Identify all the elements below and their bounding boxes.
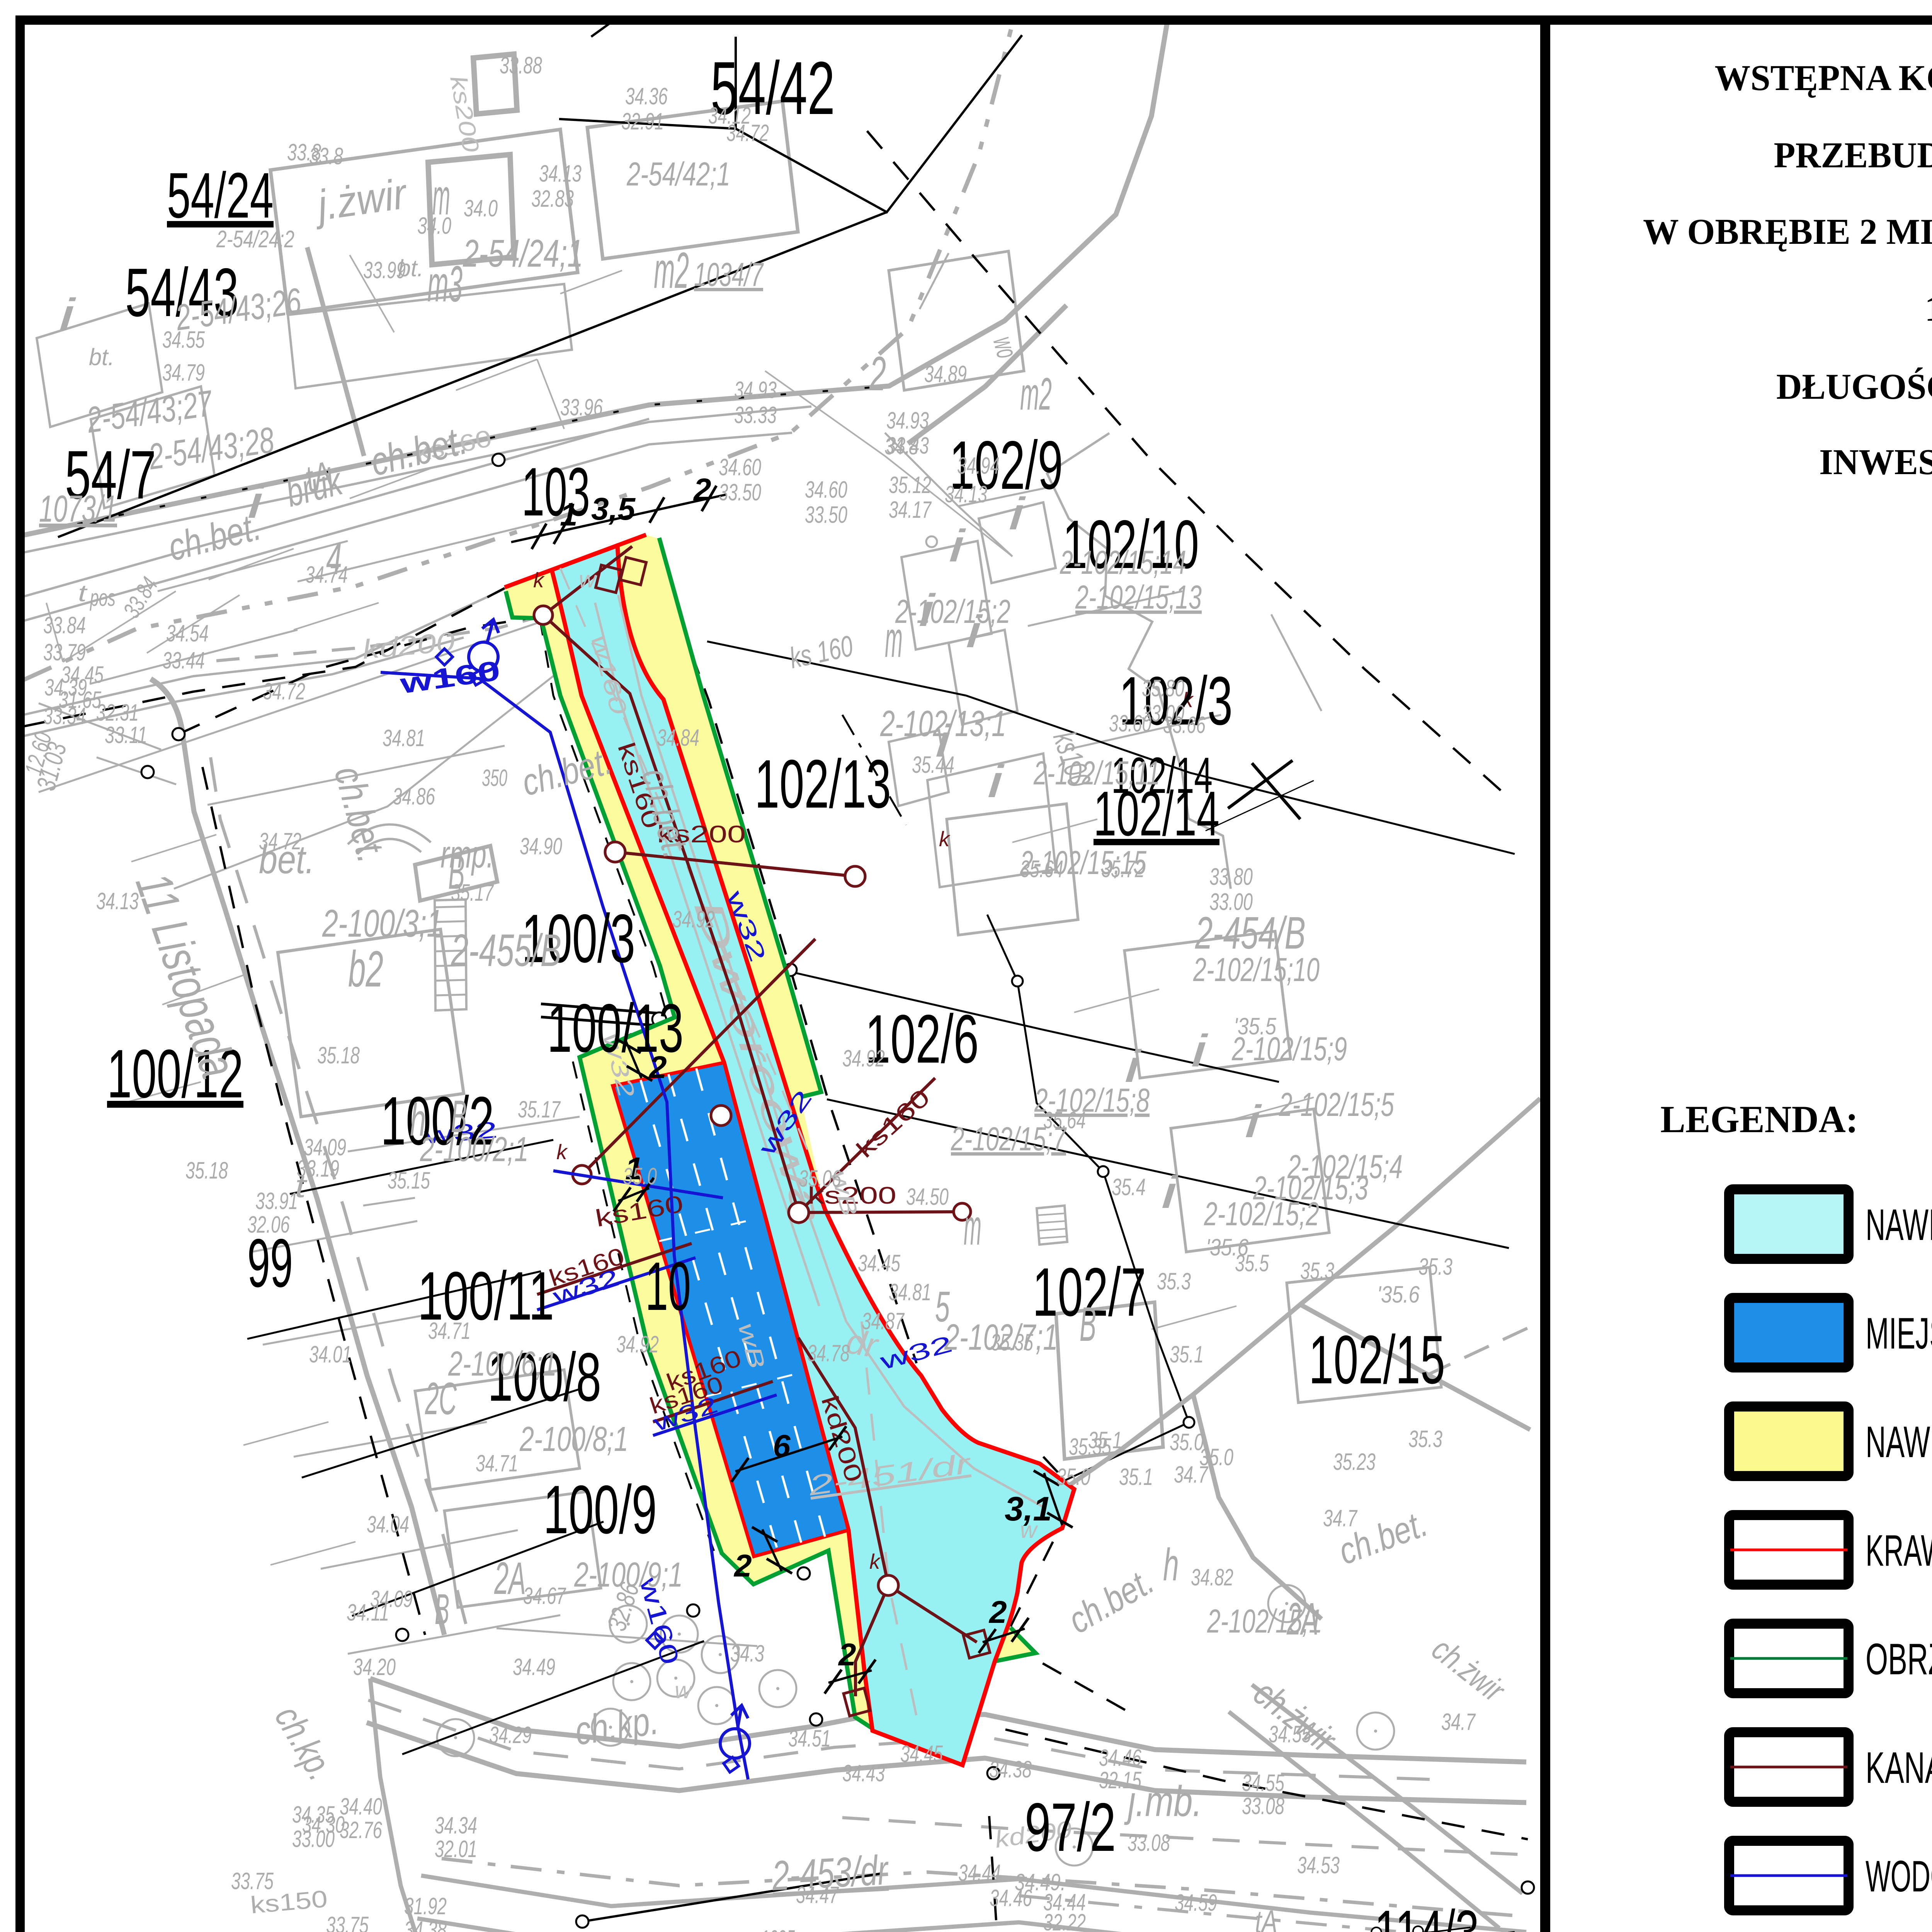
svg-text:2-102/15;2: 2-102/15;2 — [1204, 1196, 1319, 1233]
svg-text:W OBRĘBIE 2 MIASTA SĘPOPOL, NA: W OBRĘBIE 2 MIASTA SĘPOPOL, NA DZIAŁKACH… — [1643, 212, 1932, 252]
svg-text:34.53: 34.53 — [1297, 1852, 1340, 1878]
svg-text:34.45: 34.45 — [61, 662, 104, 688]
svg-text:32.01: 32.01 — [435, 1836, 477, 1862]
svg-text:WODOCIĄG: WODOCIĄG — [1866, 1852, 1932, 1901]
svg-text:34.7: 34.7 — [1174, 1461, 1208, 1488]
svg-text:33.75: 33.75 — [326, 1912, 369, 1932]
svg-text:34.71: 34.71 — [428, 1318, 471, 1344]
svg-text:34.72: 34.72 — [259, 828, 301, 854]
svg-text:pos: pos — [90, 585, 116, 611]
svg-text:i: i — [59, 289, 76, 340]
svg-text:2-100/8;1: 2-100/8;1 — [519, 1420, 628, 1459]
svg-text:33.19: 33.19 — [297, 1155, 339, 1182]
svg-text:34.17: 34.17 — [889, 497, 932, 523]
svg-text:32.91: 32.91 — [621, 108, 664, 134]
svg-text:'35.5: '35.5 — [1234, 1013, 1277, 1039]
svg-text:35.0: 35.0 — [1056, 1464, 1090, 1490]
svg-text:2-100/6;1: 2-100/6;1 — [448, 1344, 557, 1383]
svg-text:34.93: 34.93 — [734, 377, 777, 403]
svg-text:35.3: 35.3 — [1300, 1258, 1334, 1284]
svg-text:k: k — [533, 568, 545, 592]
svg-text:35.06: 35.06 — [799, 1165, 841, 1192]
svg-text:34.87: 34.87 — [862, 1308, 905, 1334]
svg-text:103: 103 — [522, 453, 590, 530]
svg-text:35.1: 35.1 — [1119, 1464, 1153, 1490]
svg-text:35.4: 35.4 — [1112, 1174, 1146, 1200]
svg-text:34.94: 34.94 — [957, 452, 1000, 479]
svg-text:34.71: 34.71 — [476, 1450, 518, 1476]
svg-text:35.5: 35.5 — [1235, 1250, 1269, 1276]
svg-text:100/13: 100/13 — [547, 990, 684, 1066]
svg-text:B: B — [435, 1585, 449, 1633]
svg-text:34.38: 34.38 — [989, 1756, 1032, 1782]
svg-text:10: 10 — [645, 1248, 691, 1325]
svg-text:34.46: 34.46 — [990, 1885, 1032, 1911]
svg-text:2-455/B: 2-455/B — [451, 925, 561, 976]
svg-text:34.20: 34.20 — [353, 1654, 396, 1680]
svg-text:34.29: 34.29 — [489, 1722, 532, 1748]
svg-text:NAWIERZCHNIA CHODNIKA/OPASKI: NAWIERZCHNIA CHODNIKA/OPASKI — [1866, 1418, 1932, 1467]
svg-text:33.00: 33.00 — [1209, 888, 1253, 915]
svg-text:rmp.: rmp. — [440, 833, 494, 876]
svg-text:34.45: 34.45 — [900, 1741, 943, 1767]
svg-text:m3: m3 — [427, 255, 463, 312]
svg-text:34.0: 34.0 — [417, 213, 451, 239]
svg-text:i: i — [1245, 1096, 1262, 1147]
svg-text:34.01: 34.01 — [309, 1341, 352, 1367]
svg-text:35.1: 35.1 — [1170, 1341, 1204, 1367]
svg-text:32.76: 32.76 — [340, 1817, 382, 1843]
svg-text:k: k — [869, 1549, 881, 1573]
svg-text:2: 2 — [733, 1548, 752, 1583]
svg-text:34.92: 34.92 — [616, 1331, 659, 1357]
svg-text:35.80: 35.80 — [1142, 675, 1184, 701]
svg-text:35.0: 35.0 — [623, 1163, 657, 1189]
svg-text:i: i — [1124, 1041, 1142, 1092]
svg-text:34.92: 34.92 — [842, 1045, 885, 1071]
svg-text:33.96: 33.96 — [560, 394, 603, 420]
svg-text:34.72: 34.72 — [263, 678, 305, 704]
svg-text:i: i — [987, 756, 1005, 807]
svg-text:2-102/15;13: 2-102/15;13 — [1075, 579, 1202, 616]
svg-text:34.89: 34.89 — [924, 361, 967, 387]
svg-text:33.00: 33.00 — [292, 1826, 335, 1852]
svg-text:34.78: 34.78 — [807, 1340, 850, 1366]
svg-text:'35.6: '35.6 — [1377, 1281, 1420, 1308]
svg-text:34.81: 34.81 — [383, 725, 425, 751]
svg-text:34.34: 34.34 — [435, 1812, 477, 1838]
svg-text:35.12: 35.12 — [889, 472, 931, 498]
svg-text:35.18: 35.18 — [317, 1042, 360, 1068]
svg-text:33.8: 33.8 — [309, 143, 343, 169]
svg-text:35.23: 35.23 — [1333, 1449, 1376, 1475]
svg-text:34.60: 34.60 — [805, 476, 847, 503]
svg-text:34.55: 34.55 — [1242, 1770, 1285, 1796]
svg-text:34.8: 34.8 — [884, 433, 918, 459]
svg-text:6: 6 — [773, 1429, 791, 1464]
svg-text:34.13: 34.13 — [96, 888, 139, 914]
svg-text:3,5: 3,5 — [591, 492, 636, 527]
svg-text:34.67: 34.67 — [523, 1583, 566, 1609]
svg-text:2-54/24;2: 2-54/24;2 — [216, 226, 294, 253]
svg-text:2-54/24;1: 2-54/24;1 — [463, 232, 583, 275]
svg-text:35.1: 35.1 — [1088, 1427, 1122, 1453]
svg-text:35.0: 35.0 — [1170, 1429, 1204, 1455]
svg-text:2-54/42;1: 2-54/42;1 — [626, 156, 730, 193]
svg-text:NAWIERZCHNIA DROGI: NAWIERZCHNIA DROGI — [1866, 1201, 1932, 1250]
svg-text:33.08: 33.08 — [1242, 1793, 1284, 1819]
svg-text:33.00: 33.00 — [1142, 700, 1184, 726]
svg-text:WSTĘPNA KONCEPCJA ZAKRESU ROBÓ: WSTĘPNA KONCEPCJA ZAKRESU ROBÓT — [1715, 58, 1932, 98]
svg-text:2-102/15;14: 2-102/15;14 — [1060, 544, 1186, 581]
svg-text:m: m — [964, 1199, 981, 1255]
svg-text:33.91: 33.91 — [255, 1188, 298, 1214]
svg-text:34.93: 34.93 — [886, 407, 929, 434]
svg-text:34.51: 34.51 — [788, 1725, 831, 1752]
svg-text:32.06: 32.06 — [247, 1211, 290, 1238]
svg-text:2-102/15;5: 2-102/15;5 — [1279, 1086, 1395, 1123]
svg-text:33.80: 33.80 — [1209, 863, 1253, 890]
svg-text:34.50: 34.50 — [906, 1184, 949, 1210]
svg-text:35.64: 35.64 — [1020, 855, 1063, 883]
svg-text:35.18: 35.18 — [185, 1157, 228, 1184]
svg-text:31.92: 31.92 — [404, 1893, 447, 1919]
svg-text:33.44: 33.44 — [162, 647, 205, 673]
svg-text:34.38: 34.38 — [404, 1917, 447, 1932]
svg-text:33.84: 33.84 — [43, 612, 86, 638]
svg-text:34.36: 34.36 — [625, 83, 668, 109]
svg-text:32.83: 32.83 — [531, 185, 574, 212]
svg-text:2: 2 — [838, 1637, 856, 1672]
svg-text:1073/1: 1073/1 — [39, 488, 117, 530]
svg-text:m2: m2 — [1020, 369, 1052, 420]
svg-text:34.04: 34.04 — [367, 1511, 409, 1537]
svg-text:34.47: 34.47 — [796, 1882, 839, 1908]
svg-text:34.13: 34.13 — [945, 481, 987, 507]
svg-text:33.33: 33.33 — [734, 402, 777, 428]
svg-text:b2: b2 — [348, 940, 383, 997]
svg-text:i: i — [1009, 488, 1026, 539]
svg-text:DŁUGOŚĆ DROGI OK. 65 METRÓW: DŁUGOŚĆ DROGI OK. 65 METRÓW — [1776, 367, 1932, 407]
svg-text:34.35: 34.35 — [292, 1801, 335, 1828]
svg-text:33.08: 33.08 — [1128, 1830, 1170, 1856]
svg-text:34.86: 34.86 — [393, 783, 435, 810]
svg-text:32.22: 32.22 — [1043, 1909, 1086, 1932]
svg-text:w: w — [579, 566, 597, 592]
svg-text:h: h — [1163, 1539, 1179, 1590]
svg-text:34.92: 34.92 — [672, 906, 715, 932]
svg-text:35.17: 35.17 — [451, 879, 494, 906]
svg-text:PRZEBUDOWA DROGI POŁOŻONEJ: PRZEBUDOWA DROGI POŁOŻONEJ — [1774, 135, 1932, 175]
svg-text:100/9: 100/9 — [543, 1471, 657, 1548]
svg-text:34.90: 34.90 — [520, 833, 562, 859]
svg-text:3,1: 3,1 — [1005, 1490, 1052, 1528]
svg-text:35.3: 35.3 — [1157, 1268, 1191, 1294]
svg-text:2A: 2A — [494, 1553, 526, 1604]
svg-text:35.44: 35.44 — [912, 752, 954, 778]
svg-text:2: 2 — [869, 347, 886, 401]
svg-text:k: k — [556, 1140, 568, 1164]
svg-text:2-102/15;2: 2-102/15;2 — [895, 593, 1010, 630]
svg-text:i: i — [1161, 1167, 1179, 1218]
svg-text:1095: 1095 — [761, 1925, 795, 1932]
svg-text:35.64: 35.64 — [1043, 1107, 1086, 1133]
svg-text:INWESTOR: GMINA SĘPOPOL: INWESTOR: GMINA SĘPOPOL — [1819, 442, 1932, 482]
svg-text:102/13: 102/13 — [755, 745, 891, 822]
svg-text:35.3: 35.3 — [1418, 1253, 1452, 1280]
svg-text:KANALIZACJA DESZCZOWA: KANALIZACJA DESZCZOWA — [1866, 1743, 1932, 1793]
svg-text:2: 2 — [988, 1595, 1007, 1630]
svg-text:34.7: 34.7 — [1323, 1505, 1357, 1531]
svg-text:bt.: bt. — [89, 344, 114, 370]
svg-text:54/24: 54/24 — [167, 160, 274, 231]
svg-text:34.72: 34.72 — [726, 120, 769, 146]
svg-text:34.40: 34.40 — [340, 1793, 382, 1820]
svg-text:97/2: 97/2 — [1025, 1789, 1116, 1866]
svg-text:34.55: 34.55 — [1269, 1721, 1311, 1747]
svg-text:2-102/15;11: 2-102/15;11 — [1033, 755, 1160, 792]
svg-text:2-100/2;1: 2-100/2;1 — [420, 1130, 529, 1169]
svg-text:34.79: 34.79 — [162, 359, 205, 386]
svg-text:34.49: 34.49 — [513, 1654, 555, 1680]
svg-text:34.7: 34.7 — [1441, 1709, 1476, 1735]
svg-text:2-100/3;1: 2-100/3;1 — [322, 902, 442, 945]
svg-text:35.72: 35.72 — [1101, 855, 1145, 883]
svg-text:34.43: 34.43 — [842, 1760, 885, 1786]
svg-text:w: w — [675, 1677, 693, 1703]
svg-text:2-102/15;1: 2-102/15;1 — [1207, 1603, 1322, 1640]
svg-text:34.82: 34.82 — [1191, 1564, 1233, 1590]
svg-text:34.60: 34.60 — [719, 454, 761, 480]
svg-text:34.0: 34.0 — [464, 195, 498, 221]
svg-text:114/3: 114/3 — [1374, 1897, 1479, 1932]
svg-text:OBRZEŻE: OBRZEŻE — [1866, 1635, 1932, 1684]
svg-text:34.13: 34.13 — [539, 160, 582, 187]
svg-text:m2: m2 — [654, 242, 689, 299]
svg-text:102/15: 102/15 — [1309, 1321, 1445, 1398]
svg-text:2-102/15;10: 2-102/15;10 — [1193, 951, 1320, 988]
svg-text:33.11: 33.11 — [105, 722, 147, 748]
svg-text:34.3: 34.3 — [730, 1640, 764, 1667]
svg-text:34.59: 34.59 — [1175, 1889, 1217, 1916]
svg-text:2-102/13;1: 2-102/13;1 — [880, 704, 1006, 744]
svg-text:33.50: 33.50 — [719, 479, 761, 505]
svg-text:33.75: 33.75 — [231, 1868, 274, 1894]
svg-text:34.81: 34.81 — [889, 1279, 931, 1305]
svg-text:35.3: 35.3 — [1408, 1426, 1442, 1452]
svg-text:34.74: 34.74 — [305, 561, 348, 588]
svg-text:i: i — [949, 520, 966, 571]
svg-text:MIEJSCA POSTOJOWE: MIEJSCA POSTOJOWE — [1866, 1309, 1932, 1358]
svg-text:35.17: 35.17 — [518, 1096, 561, 1122]
svg-text:34.55: 34.55 — [162, 327, 205, 353]
svg-text:34.84: 34.84 — [657, 724, 699, 751]
svg-text:32.15: 32.15 — [1099, 1767, 1142, 1793]
svg-text:i: i — [1191, 1026, 1208, 1077]
svg-text:34.44: 34.44 — [958, 1860, 1001, 1886]
svg-text:1034/7: 1034/7 — [694, 256, 764, 293]
svg-text:33.50: 33.50 — [805, 502, 847, 528]
svg-text:2: 2 — [693, 472, 711, 507]
svg-text:33.88: 33.88 — [500, 52, 542, 78]
svg-text:35.35: 35.35 — [991, 1329, 1034, 1355]
svg-text:34.45: 34.45 — [858, 1250, 901, 1276]
svg-text:350: 350 — [482, 765, 507, 791]
svg-text:100/10, 101, 102/15: 100/10, 101, 102/15 — [1925, 289, 1932, 329]
svg-text:tA: tA — [1255, 1904, 1277, 1932]
svg-text:34.54: 34.54 — [166, 620, 209, 646]
svg-text:B: B — [1080, 1298, 1096, 1351]
svg-text:LEGENDA:: LEGENDA: — [1660, 1098, 1858, 1141]
svg-text:bt.: bt. — [398, 255, 423, 281]
svg-text:31.65: 31.65 — [59, 687, 102, 713]
svg-text:34.11: 34.11 — [347, 1599, 389, 1626]
svg-text:35.15: 35.15 — [388, 1167, 430, 1194]
svg-text:KRAWĘŻNIK DROGOWY: KRAWĘŻNIK DROGOWY — [1866, 1526, 1932, 1575]
svg-text:k: k — [939, 827, 951, 851]
